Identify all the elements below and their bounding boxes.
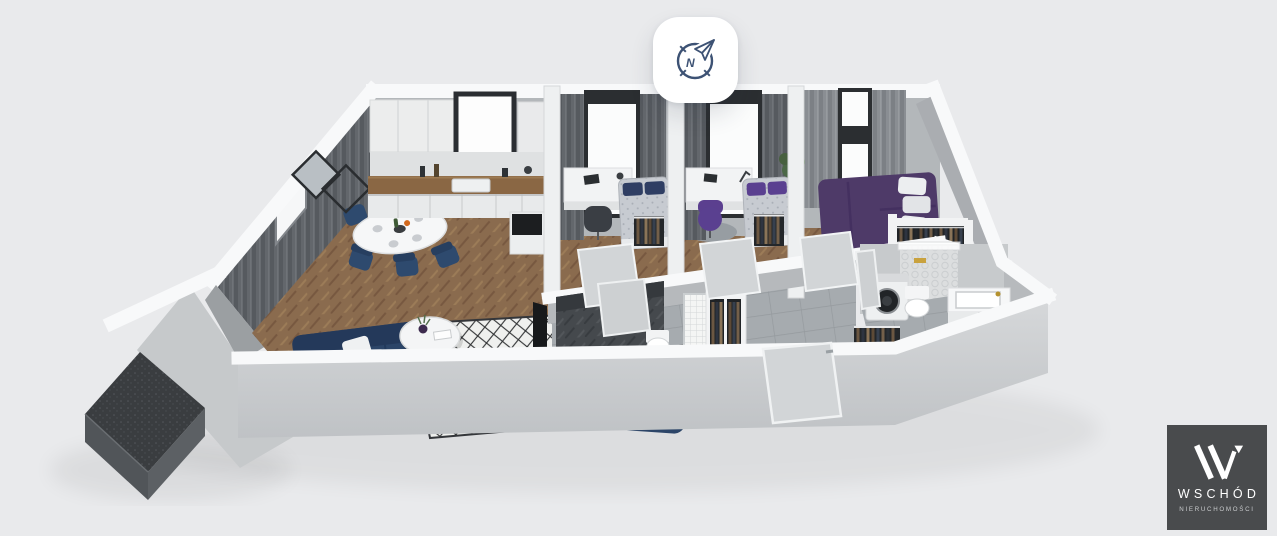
door-bedroom2	[700, 238, 760, 299]
bedroom2-shelf-unit	[754, 214, 784, 246]
floorplan-canvas[interactable]	[0, 0, 1277, 536]
master-pillow	[903, 196, 931, 213]
bedroom1-shelf-unit	[634, 216, 664, 246]
wall-bedroom1-bedroom2	[668, 86, 684, 300]
w-monogram-icon	[1188, 442, 1246, 482]
coffee-table-vase	[419, 325, 428, 334]
desk-items	[704, 173, 718, 182]
kitchen-upper-cabinets	[370, 100, 456, 152]
compass-button[interactable]: N	[653, 17, 738, 103]
coffee-table-books	[434, 330, 452, 340]
bed2-pillow	[767, 181, 787, 195]
bed2-pillow	[746, 182, 766, 196]
cooktop	[512, 214, 542, 235]
shower-glass	[898, 242, 960, 250]
brand-name: WSCHÓD	[1178, 487, 1260, 501]
shower-tray	[684, 294, 707, 350]
kitchen-sink	[452, 179, 490, 192]
kitchen-peninsula	[510, 212, 546, 254]
door-master	[800, 232, 858, 291]
brand-watermark: WSCHÓD NIERUCHOMOŚCI	[1167, 425, 1267, 530]
brand-tagline: NIERUCHOMOŚCI	[1179, 506, 1254, 513]
bedroom1-curtain-left	[560, 94, 584, 240]
desk-lamp	[617, 173, 624, 180]
kitchen-backsplash	[370, 152, 544, 178]
towel-gold	[914, 258, 926, 263]
bathroom-toilet	[905, 286, 929, 317]
entrance-door	[763, 343, 841, 423]
bed1-pillow	[644, 181, 665, 195]
door-wc	[598, 279, 650, 336]
kitchen-upper-cabinet-right	[518, 102, 544, 158]
door-handle	[826, 351, 833, 352]
floorplan-viewer: N WSCHÓD NIERUCHOMOŚCI	[0, 0, 1277, 536]
bed1-pillow	[622, 182, 643, 196]
master-pillow	[898, 176, 927, 195]
wall-kitchen-bedroom1	[544, 86, 560, 302]
faucet-gold	[996, 292, 1001, 297]
compass-north-icon: N	[669, 33, 723, 87]
compass-cardinal-label: N	[686, 56, 695, 70]
